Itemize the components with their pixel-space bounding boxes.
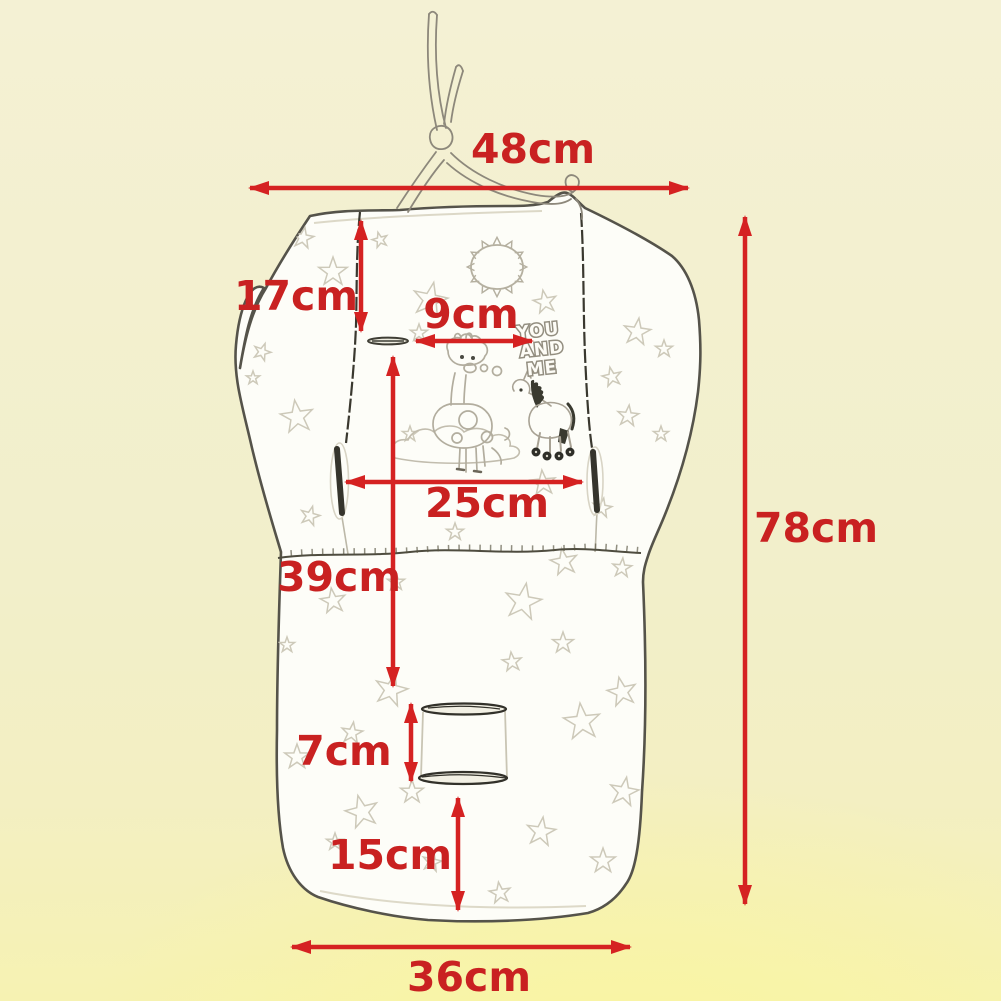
label-buckle-gap: 7cm (296, 727, 392, 775)
label-top-width: 48cm (471, 125, 595, 173)
product-dimension-diagram: YOU AND ME 48cm 17cm 9cm 25 (0, 0, 1001, 1001)
upper-buckle-slot (422, 704, 506, 715)
strap-knot (430, 126, 453, 149)
slogan-line-3: ME (526, 357, 558, 380)
label-back-top: 17cm (234, 272, 358, 320)
label-seat-height: 15cm (328, 831, 452, 879)
label-back-height: 39cm (277, 553, 401, 601)
right-strap-slot (593, 452, 597, 510)
label-total-height: 78cm (754, 504, 878, 552)
diagram-canvas: YOU AND ME 48cm 17cm 9cm 25 (0, 0, 1001, 1001)
label-bottom-width: 36cm (407, 953, 531, 1001)
label-slot-width: 9cm (423, 290, 519, 338)
label-panel-width: 25cm (425, 479, 549, 527)
lower-buckle-slot (419, 772, 507, 784)
short-strap (444, 67, 456, 124)
